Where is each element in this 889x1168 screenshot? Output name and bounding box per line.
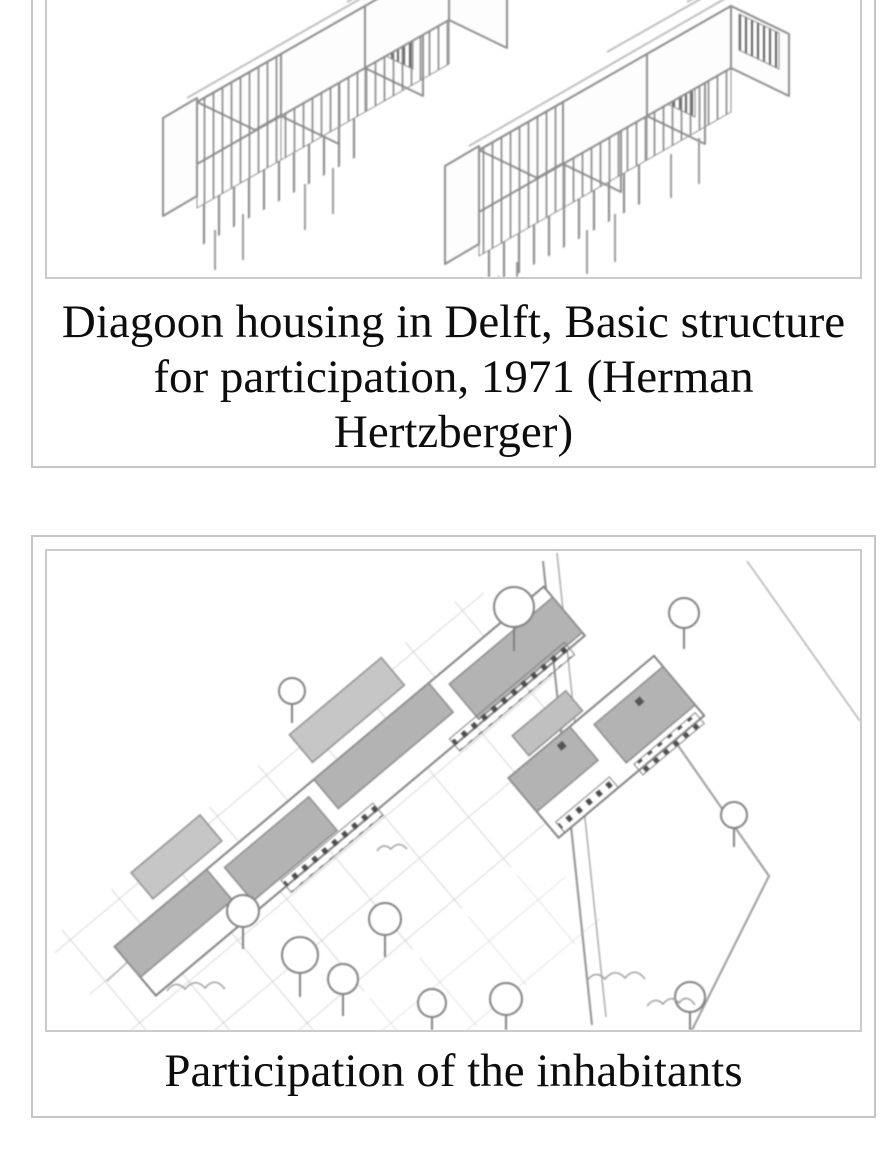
figure2-caption: Participation of the inhabitants (33, 1044, 874, 1099)
rotated-site-plan (47, 551, 763, 1030)
figure-diagoon-basic-structure: Diagoon housing in Delft, Basic structur… (31, 0, 876, 468)
figure2-caption-line-1: Participation of the inhabitants (33, 1044, 874, 1099)
site-axonometric-drawing (47, 551, 860, 1030)
diagoon-axonometric-drawing (47, 0, 860, 277)
figure-participation-inhabitants: Participation of the inhabitants (31, 535, 876, 1118)
figure1-caption: Diagoon housing in Delft, Basic structur… (33, 295, 874, 460)
page: Diagoon housing in Delft, Basic structur… (0, 0, 889, 1168)
figure1-caption-line-3: Hertzberger) (33, 405, 874, 460)
figure1-caption-line-2: for participation, 1971 (Herman (33, 350, 874, 405)
figure1-caption-line-1: Diagoon housing in Delft, Basic structur… (33, 295, 874, 350)
figure2-image-frame (45, 549, 862, 1032)
figure1-image-frame (45, 0, 862, 279)
